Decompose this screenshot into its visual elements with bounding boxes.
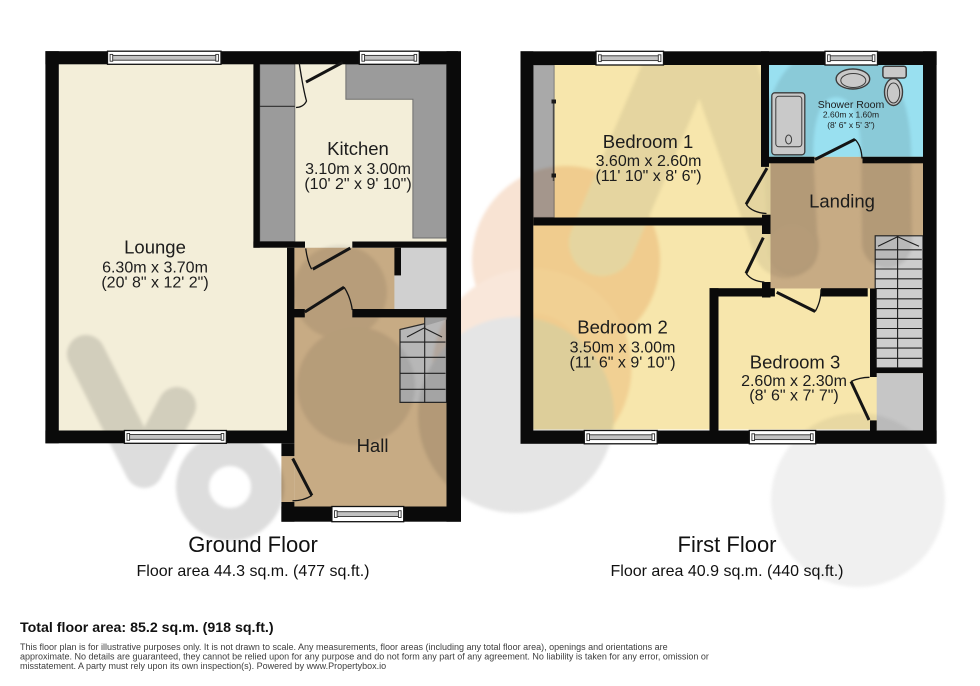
svg-text:Kitchen: Kitchen [327,138,389,159]
svg-text:This floor plan is for illustr: This floor plan is for illustrative purp… [20,642,668,652]
svg-text:approximate. No details are gu: approximate. No details are guaranteed, … [20,652,709,662]
svg-text:Floor area 44.3 sq.m. (477 sq.: Floor area 44.3 sq.m. (477 sq.ft.) [137,563,370,580]
svg-text:First Floor: First Floor [678,532,777,557]
svg-text:(10' 2" x 9' 10"): (10' 2" x 9' 10") [304,176,411,193]
svg-text:Bedroom 2: Bedroom 2 [577,317,668,338]
svg-text:Ground Floor: Ground Floor [188,532,318,557]
svg-text:Lounge: Lounge [124,237,186,258]
svg-text:Landing: Landing [809,191,875,212]
svg-text:Bedroom 3: Bedroom 3 [750,352,841,373]
svg-text:(20' 8" x 12' 2"): (20' 8" x 12' 2") [101,275,208,292]
svg-text:(11' 6" x 9' 10"): (11' 6" x 9' 10") [569,355,675,372]
svg-text:(8' 6" x 5' 3"): (8' 6" x 5' 3") [827,120,875,130]
svg-text:2.60m x 1.60m: 2.60m x 1.60m [823,110,879,120]
svg-text:(11' 10" x 8' 6"): (11' 10" x 8' 6") [595,168,701,185]
svg-text:Total floor area: 85.2 sq.m. (: Total floor area: 85.2 sq.m. (918 sq.ft.… [20,620,274,636]
svg-text:misstatement. A party must rel: misstatement. A party must rely upon its… [20,661,386,671]
svg-text:Bedroom 1: Bedroom 1 [603,131,694,152]
svg-text:Floor area 40.9 sq.m. (440 sq.: Floor area 40.9 sq.m. (440 sq.ft.) [611,563,844,580]
svg-text:Hall: Hall [357,435,389,456]
svg-text:(8' 6" x 7' 7"): (8' 6" x 7' 7") [749,388,839,405]
